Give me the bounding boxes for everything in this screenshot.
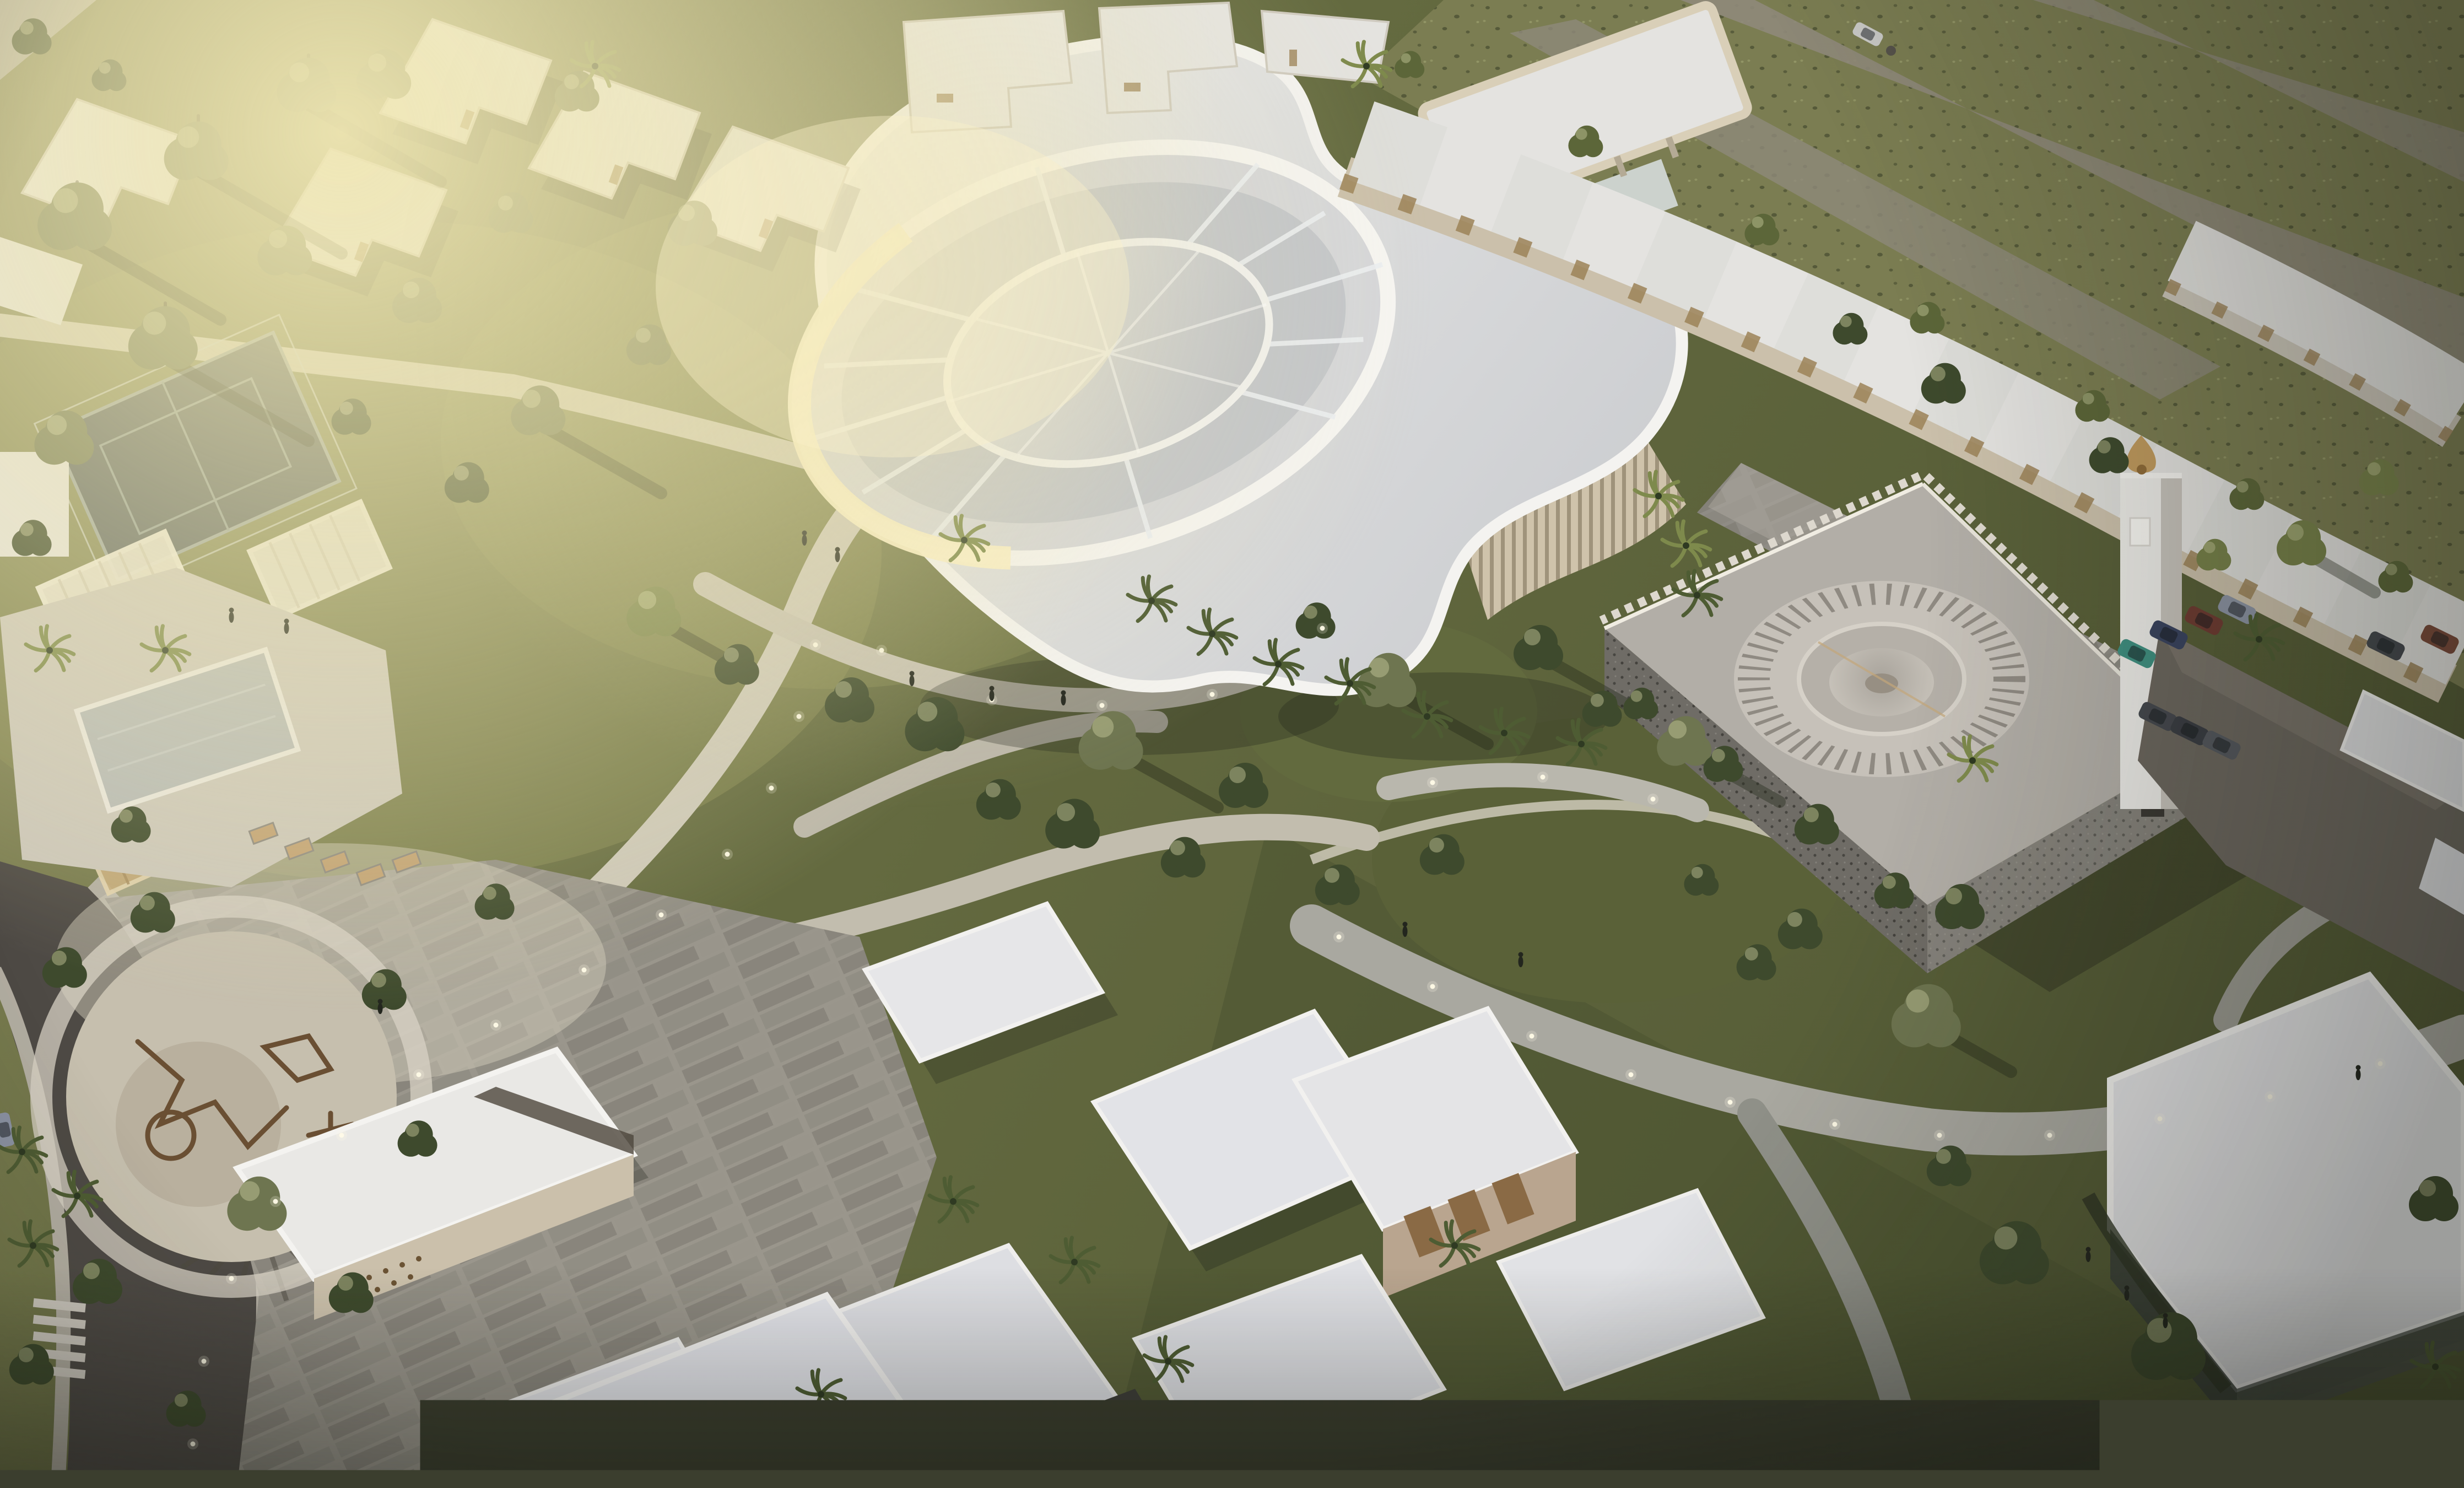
- vignette-overlay: [0, 0, 2464, 1488]
- bottom-shade-overlay: [0, 1268, 2464, 1488]
- aerial-community-render: [0, 0, 2464, 1488]
- atmosphere-overlays: [0, 0, 2464, 1488]
